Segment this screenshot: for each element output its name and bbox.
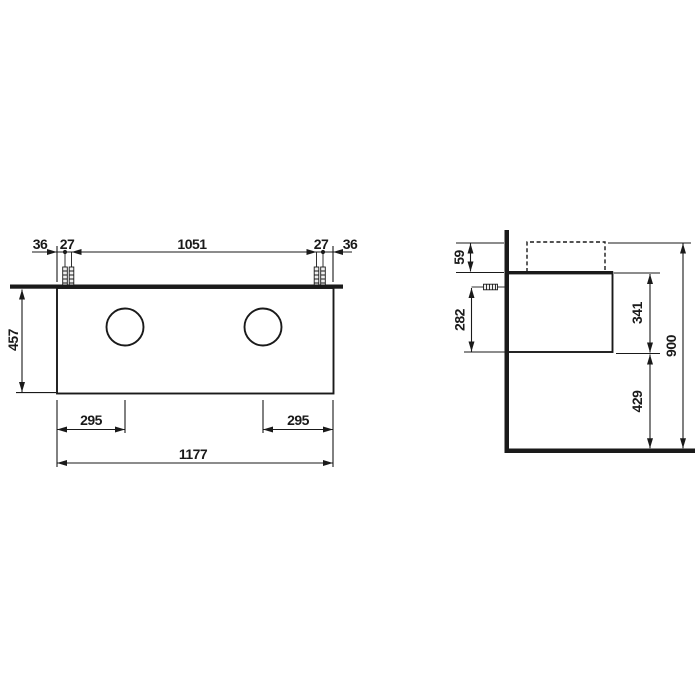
- dim-label-59: 59: [451, 250, 467, 265]
- dim-label-341: 341: [629, 301, 645, 324]
- vanity-dimension-drawing: 36 27 1051 27 36 457 295: [0, 0, 700, 700]
- mounting-screw-side: [472, 284, 505, 290]
- arrowhead: [468, 262, 474, 272]
- arrowhead: [647, 438, 653, 448]
- arrowhead: [323, 460, 333, 466]
- wall-bar: [505, 230, 510, 453]
- arrowhead: [47, 249, 57, 255]
- floor-bar: [505, 449, 696, 454]
- screw-body: [63, 267, 68, 285]
- technical-drawing-canvas: 36 27 1051 27 36 457 295: [0, 0, 700, 700]
- dim-label-1051: 1051: [177, 236, 207, 252]
- arrowhead: [647, 343, 653, 353]
- dim-overhang-59: 59: [451, 244, 474, 272]
- dim-label-282: 282: [452, 308, 468, 331]
- dim-label-295-right: 295: [287, 412, 310, 428]
- anchor-screws-right: [314, 252, 325, 286]
- dim-label-36-right: 36: [343, 236, 358, 252]
- dim-height-457: 457: [5, 290, 56, 393]
- arrowhead: [469, 288, 475, 298]
- arrowhead: [468, 244, 474, 254]
- dim-label-457: 457: [5, 328, 21, 351]
- arrowhead: [680, 438, 686, 448]
- cabinet-front-body: [57, 288, 334, 394]
- dim-label-27-right: 27: [314, 236, 329, 252]
- screw-body: [314, 267, 319, 285]
- dim-label-27-left: 27: [60, 236, 75, 252]
- dim-label-295-left: 295: [80, 412, 103, 428]
- countertop-bar: [10, 285, 343, 289]
- cabinet-side-body: [508, 273, 613, 353]
- arrowhead: [647, 355, 653, 365]
- dim-mount-282: 282: [452, 288, 475, 352]
- arrowhead: [469, 342, 475, 352]
- basin-hole-left: [107, 309, 144, 346]
- arrowhead: [680, 244, 686, 254]
- screw-body: [321, 267, 326, 285]
- dim-label-900: 900: [663, 334, 679, 357]
- dim-drain-left-295: 295: [57, 412, 125, 433]
- countertop-edge-bar: [505, 271, 613, 274]
- arrowhead: [333, 249, 343, 255]
- front-view: 36 27 1051 27 36 457 295: [5, 236, 358, 467]
- arrowhead: [115, 427, 125, 433]
- anchor-screws-left: [63, 252, 74, 286]
- dim-total-900: 900: [663, 244, 686, 449]
- basin-outline-dashed: [527, 242, 605, 272]
- arrowhead: [57, 460, 67, 466]
- screw-body: [69, 267, 74, 285]
- dim-label-36-left: 36: [33, 236, 48, 252]
- dim-drain-right-295: 295: [263, 412, 333, 433]
- side-view: 59 282 341 429 900: [451, 230, 695, 453]
- dim-label-1177: 1177: [179, 446, 208, 462]
- arrowhead: [57, 427, 67, 433]
- dim-total-width-1177: 1177: [57, 446, 333, 466]
- arrowhead: [323, 427, 333, 433]
- arrowhead: [19, 382, 25, 392]
- arrowhead: [263, 427, 273, 433]
- dim-clearance-429: 429: [629, 355, 653, 449]
- dim-label-429: 429: [629, 390, 645, 413]
- arrowhead: [647, 274, 653, 284]
- arrowhead: [19, 290, 25, 300]
- basin-hole-right: [245, 309, 282, 346]
- dim-cabinet-341: 341: [629, 274, 653, 353]
- dim-top-chain: 36 27 1051 27 36: [32, 236, 358, 282]
